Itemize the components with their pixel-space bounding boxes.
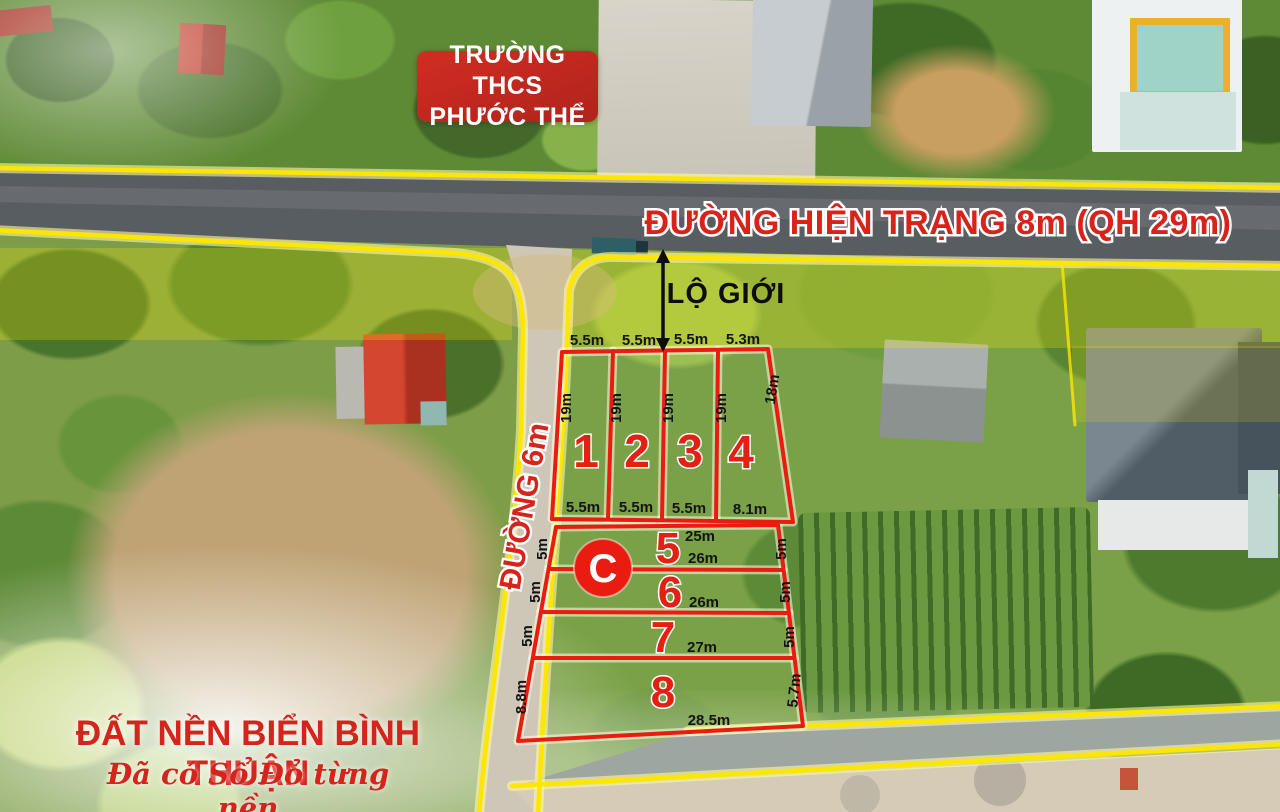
dim-width-28-5: 28.5m	[688, 712, 731, 729]
annotation-overlay: LỘ GIỚI ĐƯỜNG HIỆN TRẠNG 8m (QH 29m) ĐƯỜ…	[0, 0, 1280, 812]
dim-side-3: 19m	[660, 393, 677, 423]
aerial-plot-map: LỘ GIỚI ĐƯỜNG HIỆN TRẠNG 8m (QH 29m) ĐƯỜ…	[0, 0, 1280, 812]
plot-number-7: 7	[651, 613, 675, 662]
section-marker-letter: C	[589, 547, 618, 591]
dim-side-2: 19m	[608, 393, 625, 423]
dim-top-4: 5.3m	[726, 331, 760, 348]
dim-left-5c: 5m	[519, 625, 536, 647]
dim-top-1: 5.5m	[570, 332, 604, 349]
footer-subtitle: Đã có Sổ Đỏ từng nền	[84, 757, 412, 812]
block-b-numbers: 5 6 7 8	[651, 524, 682, 717]
dim-width-25: 25m	[685, 528, 715, 545]
dim-width-26a: 26m	[688, 550, 718, 567]
plot-number-6: 6	[658, 568, 682, 617]
plot-number-5: 5	[656, 524, 680, 573]
dim-width-26b: 26m	[689, 594, 719, 611]
dim-left-8-8: 8.8m	[513, 680, 530, 714]
dim-left-5a: 5m	[534, 538, 551, 560]
section-marker: C	[574, 539, 632, 597]
school-sign-line1: TRƯỜNG THCS	[417, 40, 598, 103]
dim-top-3: 5.5m	[674, 331, 708, 348]
dim-right-5a: 5m	[773, 538, 790, 560]
dim-side-4: 19m	[713, 393, 730, 423]
dim-left-5b: 5m	[527, 581, 544, 603]
dim-bottom-2: 5.5m	[619, 499, 653, 516]
dim-bottom-4: 8.1m	[733, 501, 767, 518]
dim-bottom-3: 5.5m	[672, 500, 706, 517]
dim-right-5b: 5m	[777, 581, 794, 603]
main-road-label: ĐƯỜNG HIỆN TRẠNG 8m (QH 29m)	[645, 204, 1232, 242]
dim-right-5-7: 5.7m	[784, 673, 804, 709]
right-boundary-line	[1062, 262, 1075, 425]
plot-number-1: 1	[573, 425, 599, 477]
dim-right-5c: 5m	[781, 626, 798, 648]
school-sign-line2: PHƯỚC THỂ	[417, 102, 598, 133]
plot-number-4: 4	[728, 426, 754, 478]
plot-number-8: 8	[651, 668, 675, 717]
school-sign: TRƯỜNG THCS PHƯỚC THỂ	[417, 51, 598, 122]
dim-top-2: 5.5m	[622, 332, 656, 349]
dim-side-1: 19m	[558, 393, 575, 423]
setback-label: LỘ GIỚI	[667, 276, 786, 310]
plot-number-3: 3	[677, 425, 703, 477]
plot-number-2: 2	[624, 425, 650, 477]
dim-bottom-1: 5.5m	[566, 499, 600, 516]
dim-side-5: 18m	[762, 373, 783, 405]
dim-width-27: 27m	[687, 639, 717, 656]
small-vehicle	[1120, 768, 1138, 790]
